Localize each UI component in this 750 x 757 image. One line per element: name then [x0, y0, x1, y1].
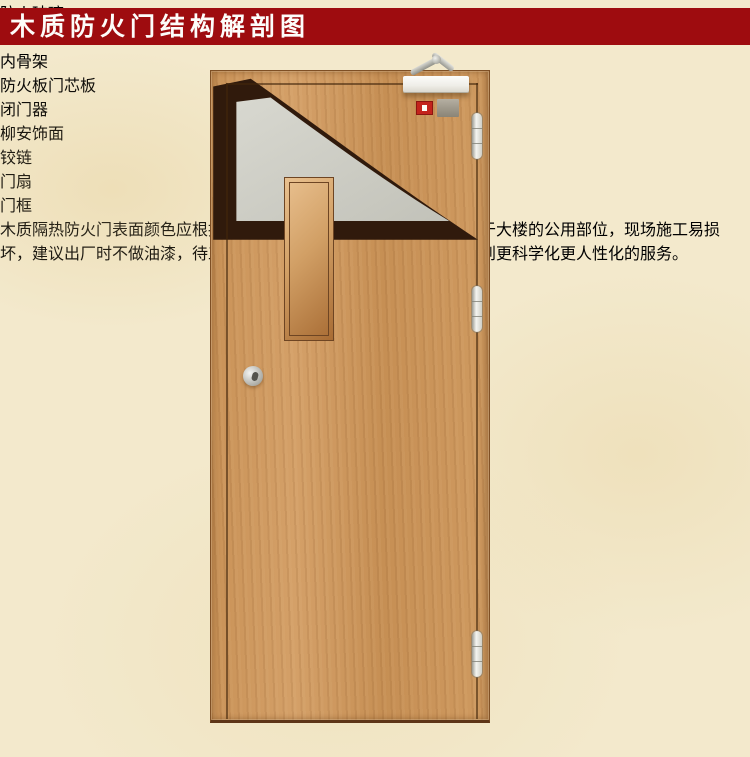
fire-glass-window	[284, 177, 334, 341]
strike-plate	[437, 99, 459, 117]
door-leaf-seam-left	[226, 83, 228, 719]
fire-lock-cylinder	[243, 366, 263, 386]
label-core-board: 防火板门芯板	[0, 72, 108, 96]
hinge-middle	[472, 286, 482, 332]
door-illustration	[210, 70, 490, 723]
door-leaf-seam-right	[476, 83, 478, 719]
alarm-indicator	[416, 101, 433, 115]
core-board-shape	[236, 97, 449, 221]
hinge-top	[472, 113, 482, 159]
handle-rose	[241, 401, 263, 423]
label-inner-skeleton: 内骨架	[0, 48, 67, 72]
title-banner: 木质防火门结构解剖图	[0, 8, 750, 45]
diagram-canvas: 木质防火门结构解剖图	[0, 0, 750, 757]
fire-glass-pane	[289, 182, 329, 336]
door-closer-pivot	[432, 55, 441, 64]
door-closer-body	[403, 76, 469, 93]
cutaway-section	[211, 71, 489, 240]
page-title: 木质防火门结构解剖图	[10, 8, 310, 45]
hinge-bottom	[472, 631, 482, 677]
